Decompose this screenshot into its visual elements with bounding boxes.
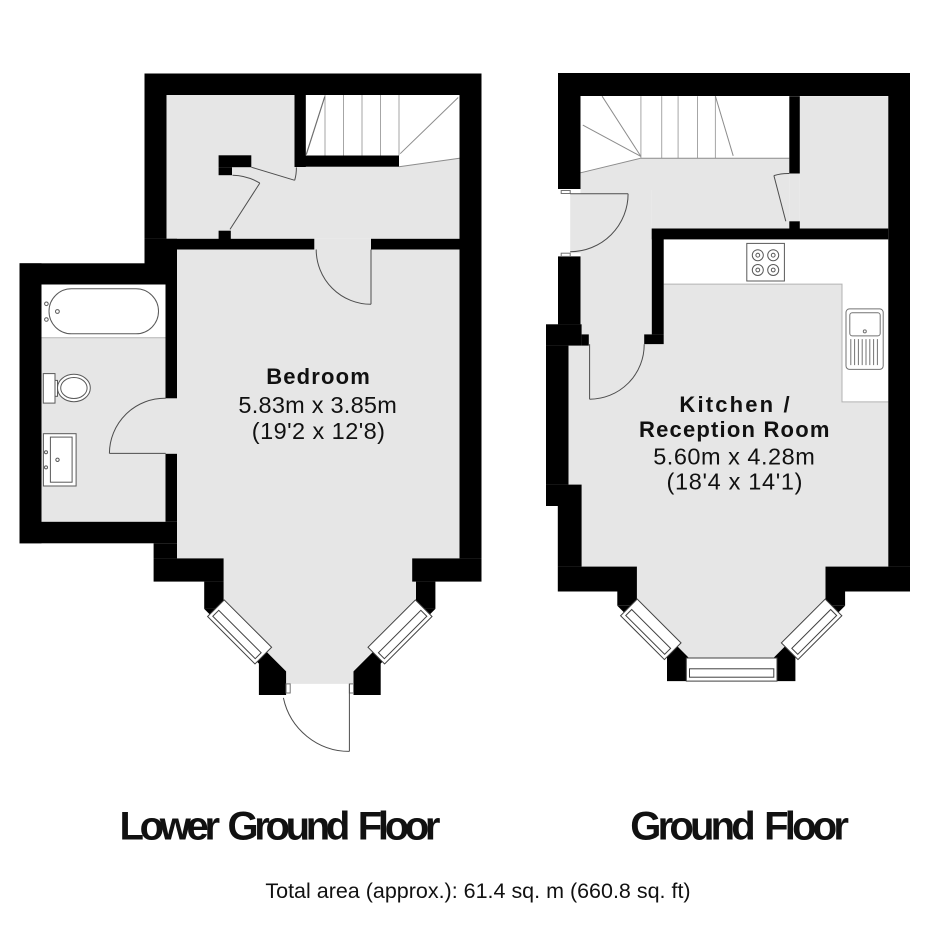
svg-text:Lower Ground Floor: Lower Ground Floor [120, 805, 441, 849]
svg-text:Ground Floor: Ground Floor [630, 805, 849, 849]
svg-text:Reception Room: Reception Room [639, 417, 829, 442]
svg-text:(18'4 x 14'1): (18'4 x 14'1) [667, 468, 803, 494]
svg-text:(19'2 x 12'8): (19'2 x 12'8) [252, 418, 385, 444]
svg-text:Bedroom: Bedroom [266, 364, 370, 389]
svg-text:Total area (approx.): 61.4 sq.: Total area (approx.): 61.4 sq. m (660.8 … [265, 879, 690, 903]
svg-text:5.60m x 4.28m: 5.60m x 4.28m [653, 443, 815, 469]
svg-text:5.83m x 3.85m: 5.83m x 3.85m [238, 392, 396, 418]
